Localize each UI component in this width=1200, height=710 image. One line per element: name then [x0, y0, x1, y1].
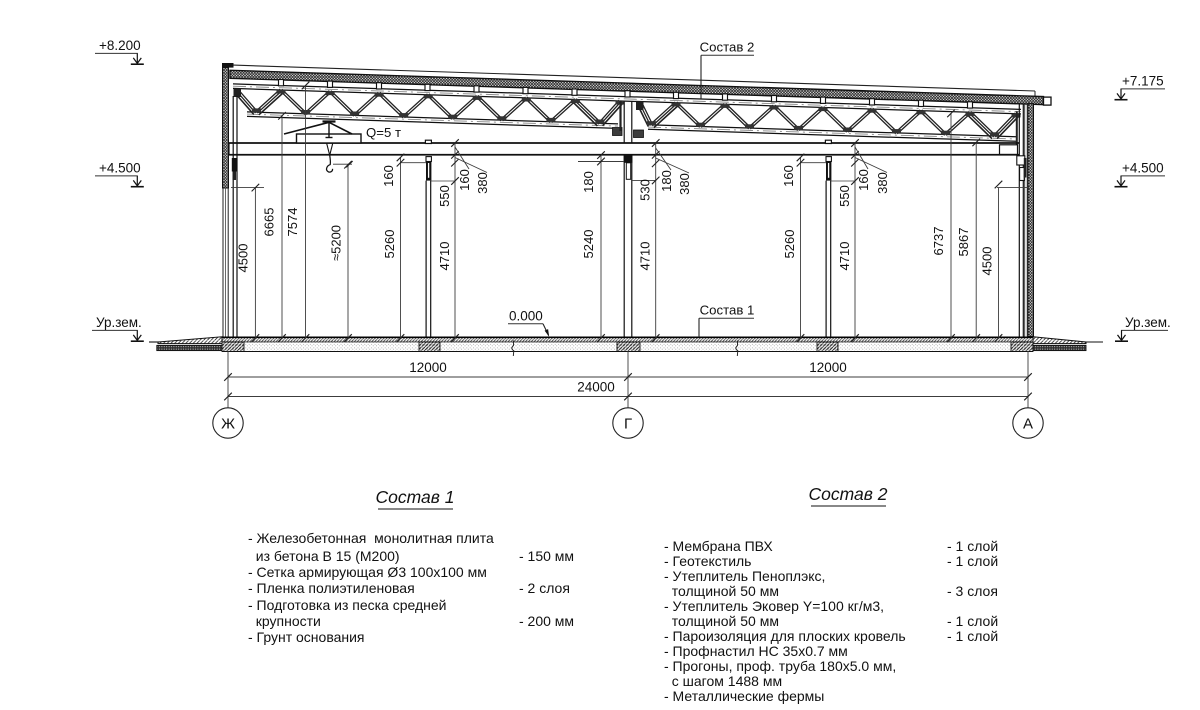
svg-text:380: 380 — [875, 172, 890, 194]
svg-text:- Профнастил НС 35х0.7 мм: - Профнастил НС 35х0.7 мм — [664, 643, 848, 659]
svg-text:160: 160 — [457, 169, 472, 191]
svg-text:530: 530 — [638, 179, 653, 201]
svg-text:- Подготовка из песка средней: - Подготовка из песка средней — [248, 597, 447, 613]
svg-text:Состав 2: Состав 2 — [700, 40, 755, 55]
svg-text:12000: 12000 — [409, 360, 447, 375]
svg-text:крупности: крупности — [248, 613, 321, 629]
svg-text:- Утеплитель Эковер Y=100 кг/м: - Утеплитель Эковер Y=100 кг/м3, — [664, 598, 884, 614]
svg-text:4710: 4710 — [837, 242, 852, 271]
svg-text:4710: 4710 — [437, 242, 452, 271]
svg-text:- Геотекстиль: - Геотекстиль — [664, 553, 751, 569]
svg-text:с шагом 1488 мм: с шагом 1488 мм — [664, 673, 782, 689]
svg-text:160: 160 — [781, 165, 796, 187]
svg-text:толщиной 50 мм: толщиной 50 мм — [664, 613, 779, 629]
svg-text:- 2 слоя: - 2 слоя — [519, 580, 570, 596]
svg-text:12000: 12000 — [809, 360, 847, 375]
svg-text:- 1 слой: - 1 слой — [947, 613, 998, 629]
svg-text:Ур.зем.: Ур.зем. — [1125, 315, 1171, 330]
svg-text:А: А — [1023, 416, 1033, 433]
svg-text:- 150 мм: - 150 мм — [519, 548, 574, 564]
svg-text:+4.500: +4.500 — [1122, 161, 1164, 176]
svg-text:толщиной 50 мм: толщиной 50 мм — [664, 583, 779, 599]
svg-text:5260: 5260 — [382, 230, 397, 259]
svg-text:- Мембрана ПВХ: - Мембрана ПВХ — [664, 538, 773, 554]
svg-text:- Пароизоляция для плоских кро: - Пароизоляция для плоских кровель — [664, 628, 906, 644]
svg-text:+7.175: +7.175 — [1122, 74, 1164, 89]
svg-text:≈5200: ≈5200 — [329, 225, 344, 261]
svg-text:- 1 слой: - 1 слой — [947, 553, 998, 569]
svg-text:+4.500: +4.500 — [99, 161, 141, 176]
svg-text:0.000: 0.000 — [509, 309, 543, 324]
svg-text:Состав 1: Состав 1 — [700, 303, 755, 318]
svg-text:4500: 4500 — [236, 244, 251, 273]
svg-text:380: 380 — [475, 172, 490, 194]
svg-text:- 200 мм: - 200 мм — [519, 613, 574, 629]
svg-text:4500: 4500 — [980, 247, 995, 276]
svg-text:7574: 7574 — [285, 208, 300, 237]
svg-text:- Металлические фермы: - Металлические фермы — [664, 688, 824, 704]
svg-text:- Сетка армирующая Ø3 100х100: - Сетка армирующая Ø3 100х100 мм — [248, 564, 487, 580]
svg-text:- 1 слой: - 1 слой — [947, 538, 998, 554]
svg-text:5240: 5240 — [581, 230, 596, 259]
svg-text:Ж: Ж — [221, 416, 235, 433]
svg-text:550: 550 — [437, 185, 452, 207]
svg-text:+8.200: +8.200 — [99, 38, 141, 53]
svg-text:- Утеплитель Пеноплэкс,: - Утеплитель Пеноплэкс, — [664, 568, 825, 584]
svg-text:6737: 6737 — [931, 227, 946, 256]
svg-text:- Железобетонная монолитная п: - Железобетонная монолитная плита — [248, 530, 494, 546]
svg-text:380: 380 — [677, 173, 692, 195]
svg-text:4710: 4710 — [638, 242, 653, 271]
svg-text:- Пленка полиэтиленовая: - Пленка полиэтиленовая — [248, 580, 415, 596]
svg-text:180: 180 — [581, 171, 596, 193]
svg-text:550: 550 — [837, 185, 852, 207]
svg-text:Ур.зем.: Ур.зем. — [96, 315, 142, 330]
svg-text:5260: 5260 — [782, 230, 797, 259]
svg-text:Q=5 т: Q=5 т — [366, 125, 401, 140]
svg-text:из бетона В 15 (М200): из бетона В 15 (М200) — [248, 548, 400, 564]
svg-text:Состав 2: Состав 2 — [809, 484, 888, 504]
svg-text:6665: 6665 — [262, 208, 277, 237]
svg-text:- 3 слоя: - 3 слоя — [947, 583, 998, 599]
svg-text:- 1 слой: - 1 слой — [947, 628, 998, 644]
svg-text:180: 180 — [659, 170, 674, 192]
svg-text:5867: 5867 — [956, 228, 971, 257]
svg-text:160: 160 — [856, 169, 871, 191]
svg-text:Состав 1: Состав 1 — [376, 487, 455, 507]
svg-text:Г: Г — [624, 416, 632, 433]
svg-text:160: 160 — [381, 165, 396, 187]
svg-text:- Прогоны, проф. труба 180х5.0: - Прогоны, проф. труба 180х5.0 мм, — [664, 658, 896, 674]
svg-text:- Грунт основания: - Грунт основания — [248, 629, 365, 645]
svg-text:24000: 24000 — [577, 380, 615, 395]
